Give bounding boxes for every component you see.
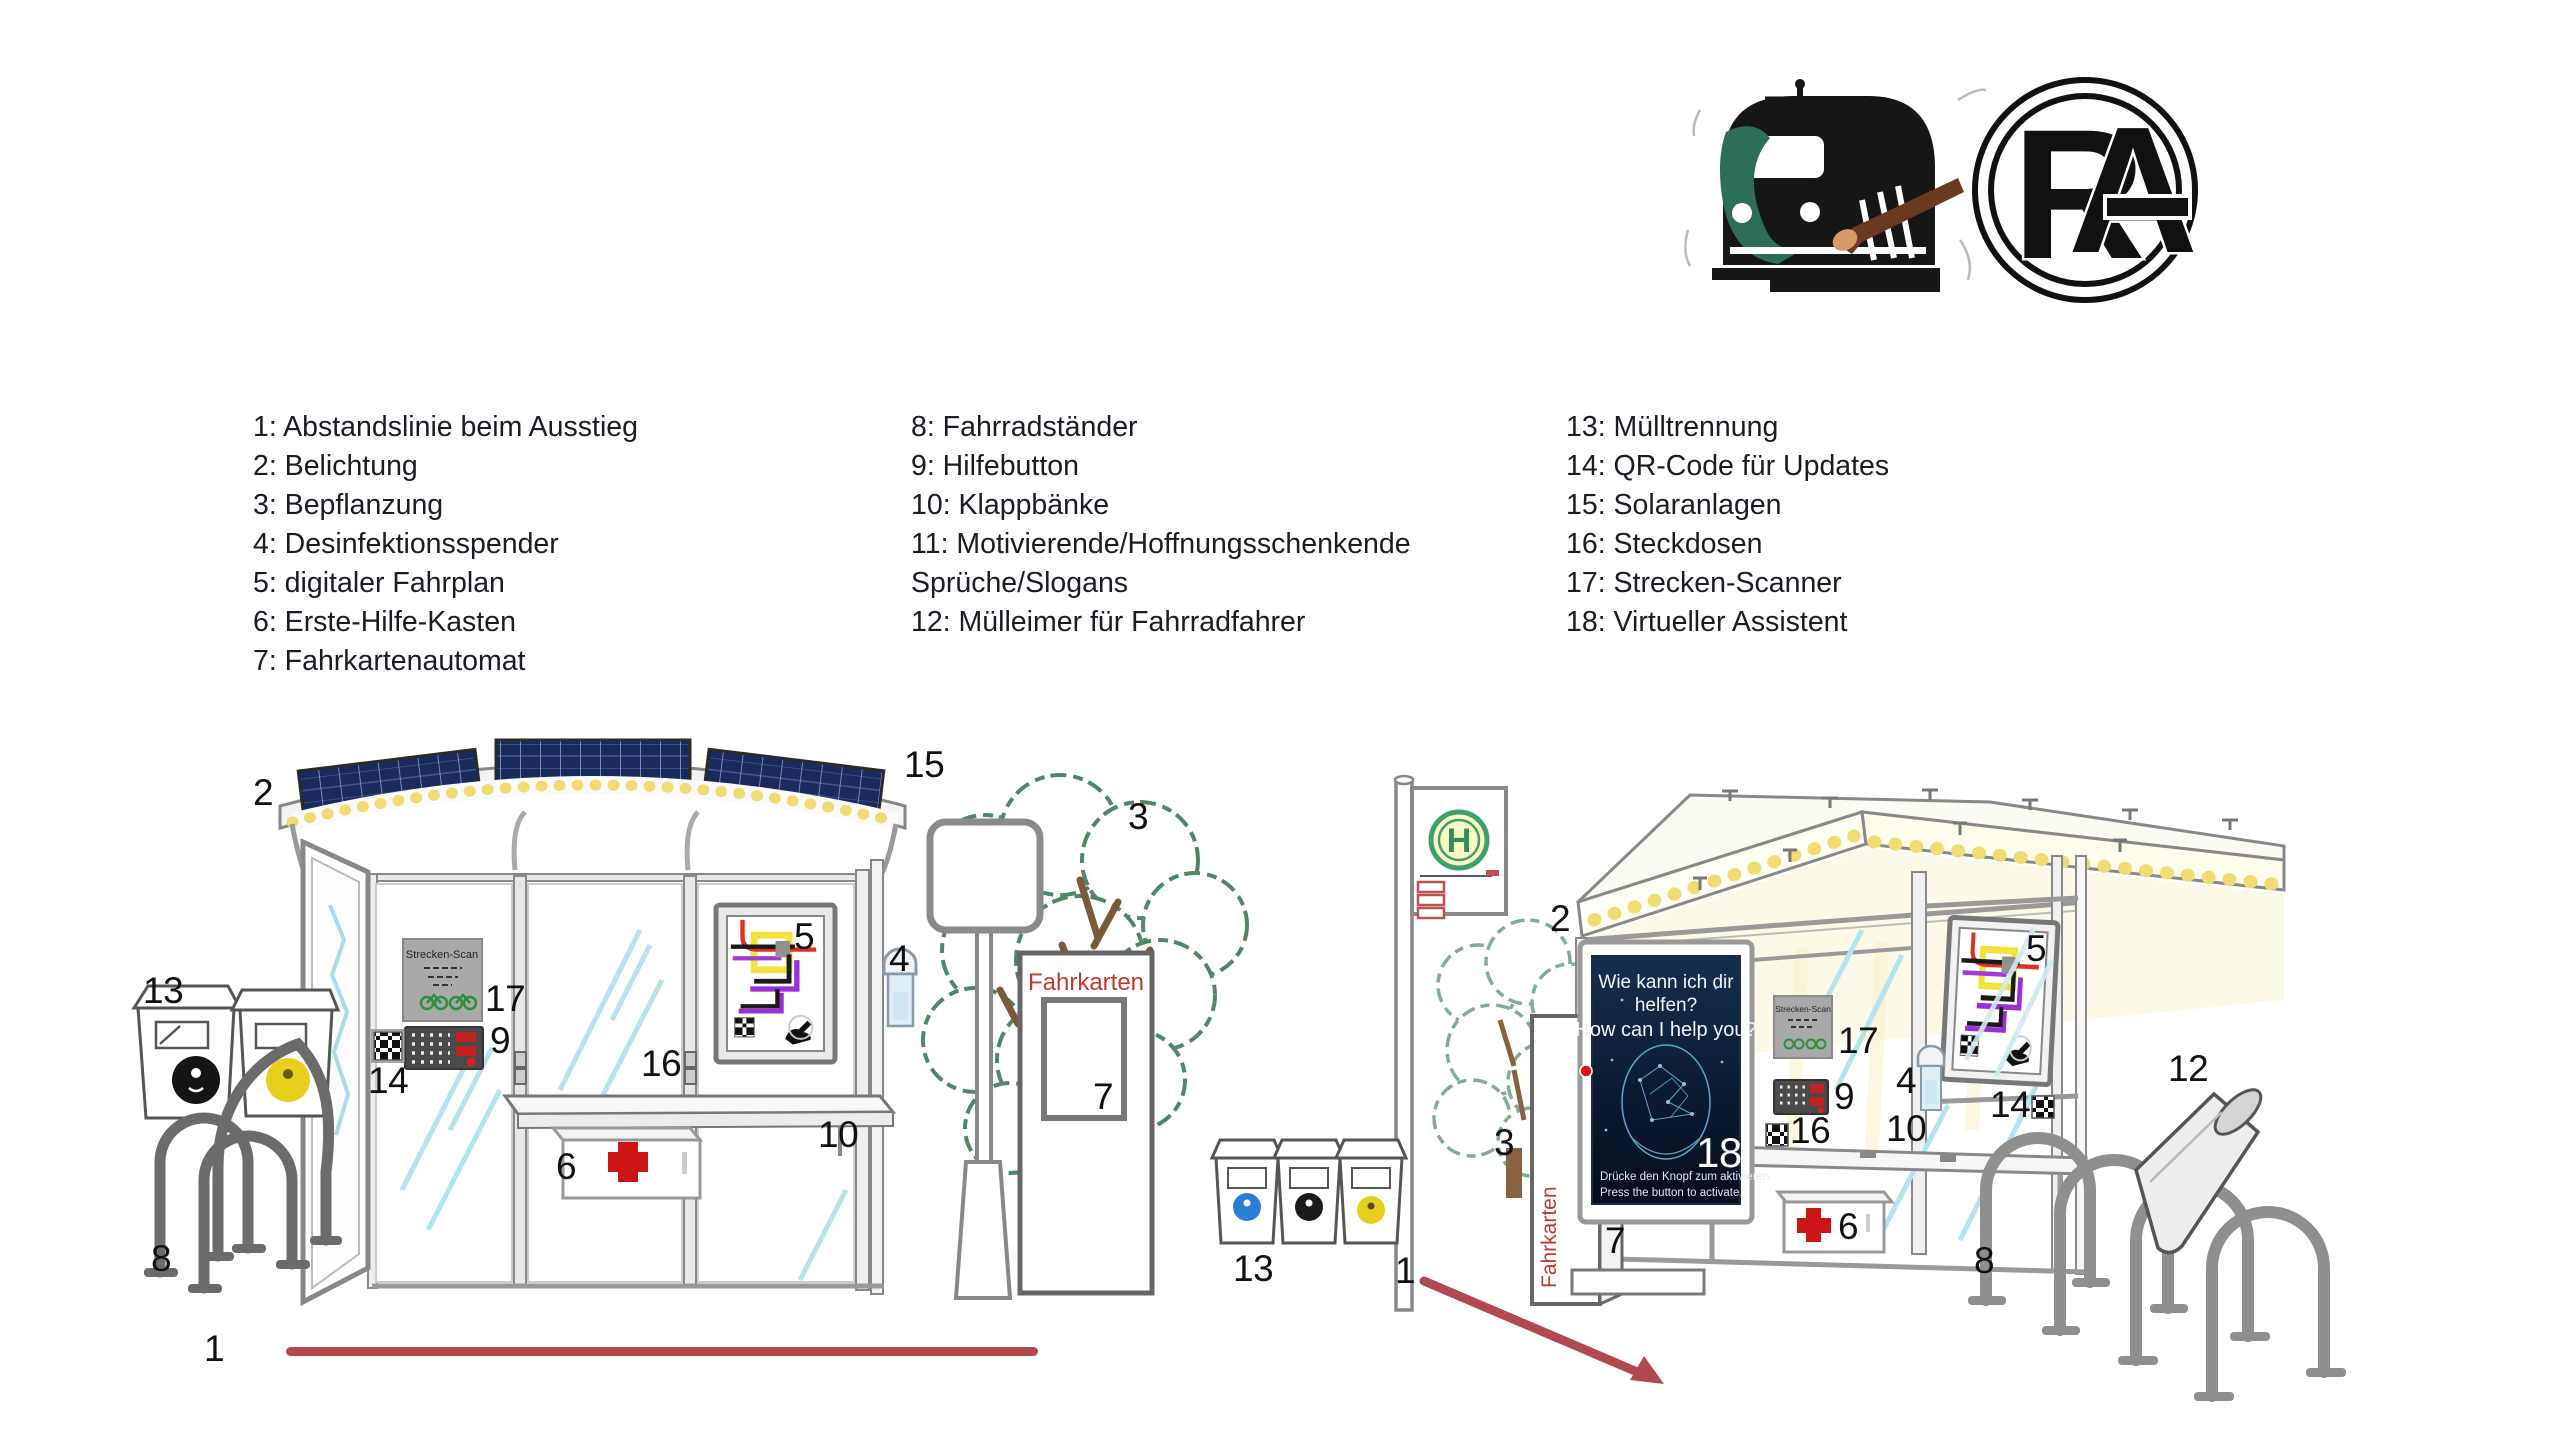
- help-button-panel-left: [405, 1027, 483, 1069]
- qr-code-icon: [1766, 1124, 1788, 1146]
- legend-item: 13: Mülltrennung: [1566, 408, 2006, 447]
- bin-icon-yellow: [1357, 1196, 1385, 1224]
- distance-line-left: [286, 1347, 1038, 1356]
- legend-item: 12: Mülleimer für Fahrradfahrer: [911, 603, 1466, 642]
- haltestelle-h-icon: H: [1431, 812, 1487, 868]
- assistant-line2: helfen?: [1635, 995, 1697, 1016]
- callout-left-5: 5: [794, 918, 814, 955]
- scanner-title-right: Strecken-Scan: [1775, 1004, 1831, 1014]
- callout-left-10: 10: [818, 1116, 858, 1153]
- legend-item: 14: QR-Code für Updates: [1566, 447, 2006, 486]
- callout-right-1: 1: [1395, 1252, 1415, 1289]
- digital-timetable-left: [716, 905, 835, 1062]
- bin-icon-blue: [1233, 1193, 1261, 1221]
- bin-icon-yellow: [266, 1058, 310, 1102]
- callout-left-8: 8: [151, 1240, 171, 1277]
- h-letter: H: [1447, 822, 1472, 860]
- legend-item: 3: Bepflanzung: [253, 486, 693, 525]
- legend-item: 10: Klappbänke: [911, 486, 1466, 525]
- legend-item: 8: Fahrradständer: [911, 408, 1466, 447]
- callout-right-8: 8: [1974, 1242, 1994, 1279]
- activate-button-icon: [1580, 1065, 1592, 1077]
- callout-right-18: 18: [1696, 1132, 1742, 1174]
- legend-column-1: 1: Abstandslinie beim Ausstieg 2: Belich…: [253, 408, 693, 681]
- legend-column-3: 13: Mülltrennung 14: QR-Code für Updates…: [1566, 408, 2006, 642]
- callout-right-14: 14: [1990, 1086, 2030, 1123]
- legend-item: 16: Steckdosen: [1566, 525, 2006, 564]
- legend-item: 5: digitaler Fahrplan: [253, 564, 693, 603]
- train-paintbrush-logo: [1685, 79, 1986, 292]
- callout-right-2: 2: [1550, 900, 1570, 937]
- assistant-footer1: Drücke den Knopf zum aktivieren.: [1600, 1171, 1773, 1183]
- first-aid-kit-right: [1778, 1192, 1892, 1252]
- callout-left-1: 1: [204, 1330, 224, 1367]
- callout-right-12: 12: [2168, 1050, 2208, 1087]
- callout-left-9: 9: [490, 1022, 510, 1059]
- bus-shelter-left: Strecken-Scan: [280, 740, 916, 1302]
- ticket-machine-left: Fahrkarten: [1020, 953, 1152, 1293]
- help-button-panel-right: [1774, 1080, 1828, 1114]
- callout-left-3: 3: [1128, 798, 1148, 835]
- scene-left: Fahrkarten: [134, 740, 1247, 1356]
- callout-right-13: 13: [1233, 1250, 1273, 1287]
- assistant-line3: How can I help you?: [1575, 1019, 1756, 1041]
- legend-item: 1: Abstandslinie beim Ausstieg: [253, 408, 693, 447]
- bus-stop-concept-illustration: R A Fahrkarten: [0, 0, 2560, 1440]
- callout-right-10: 10: [1886, 1110, 1926, 1147]
- strecken-scanner-panel-left: Strecken-Scan: [403, 939, 482, 1021]
- callout-right-16: 16: [1790, 1112, 1830, 1149]
- assistant-line1: Wie kann ich dir: [1598, 972, 1734, 993]
- disinfectant-dispenser-right: [1918, 1046, 1944, 1110]
- legend-item: 6: Erste-Hilfe-Kasten: [253, 603, 693, 642]
- callout-right-17: 17: [1838, 1022, 1878, 1059]
- legend-item: 11: Motivierende/Hoffnungsschenkende Spr…: [911, 525, 1466, 603]
- waste-bins-right: [1212, 1140, 1406, 1243]
- callout-left-16: 16: [641, 1045, 681, 1082]
- callout-left-17: 17: [485, 980, 525, 1017]
- callout-left-7: 7: [1093, 1078, 1113, 1115]
- assistant-footer2: Press the button to activate.: [1600, 1187, 1743, 1199]
- ticket-machine-left-label: Fahrkarten: [1028, 969, 1144, 996]
- legend-item: 15: Solaranlagen: [1566, 486, 2006, 525]
- bin-icon-black: [1295, 1193, 1323, 1221]
- callout-right-5: 5: [2026, 930, 2046, 967]
- callout-right-9: 9: [1834, 1078, 1854, 1115]
- ticket-machine-right-label: Fahrkarten: [1538, 1186, 1561, 1288]
- callout-left-4: 4: [889, 940, 909, 977]
- legend-item: 17: Strecken-Scanner: [1566, 564, 2006, 603]
- callout-left-6: 6: [556, 1148, 576, 1185]
- scanner-title-left: Strecken-Scan: [406, 949, 478, 961]
- legend-item: 4: Desinfektionsspender: [253, 525, 693, 564]
- rag-monogram-logo: R A: [1975, 80, 2198, 300]
- callout-right-3: 3: [1494, 1124, 1514, 1161]
- callout-right-7: 7: [1605, 1222, 1625, 1259]
- callout-left-13: 13: [143, 972, 183, 1009]
- legend-item: 7: Fahrkartenautomat: [253, 642, 693, 681]
- qr-code-icon: [372, 1030, 404, 1062]
- virtual-assistant-screen: Wie kann ich dir helfen? How can I help …: [1575, 942, 1772, 1222]
- qr-code-icon: [2032, 1096, 2054, 1118]
- strecken-scanner-panel-right: Strecken-Scan: [1774, 996, 1832, 1058]
- legend-item: 2: Belichtung: [253, 447, 693, 486]
- callout-left-2: 2: [253, 774, 273, 811]
- legend-item: 18: Virtueller Assistent: [1566, 603, 2006, 642]
- legend-item: 9: Hilfebutton: [911, 447, 1466, 486]
- callout-left-15: 15: [904, 746, 944, 783]
- rag-letter-a: A: [2068, 90, 2198, 291]
- callout-right-6: 6: [1838, 1208, 1858, 1245]
- legend-column-2: 8: Fahrradständer 9: Hilfebutton 10: Kla…: [911, 408, 1466, 642]
- callout-left-14: 14: [368, 1062, 408, 1099]
- bin-icon-black: [172, 1056, 220, 1104]
- callout-right-4: 4: [1896, 1062, 1916, 1099]
